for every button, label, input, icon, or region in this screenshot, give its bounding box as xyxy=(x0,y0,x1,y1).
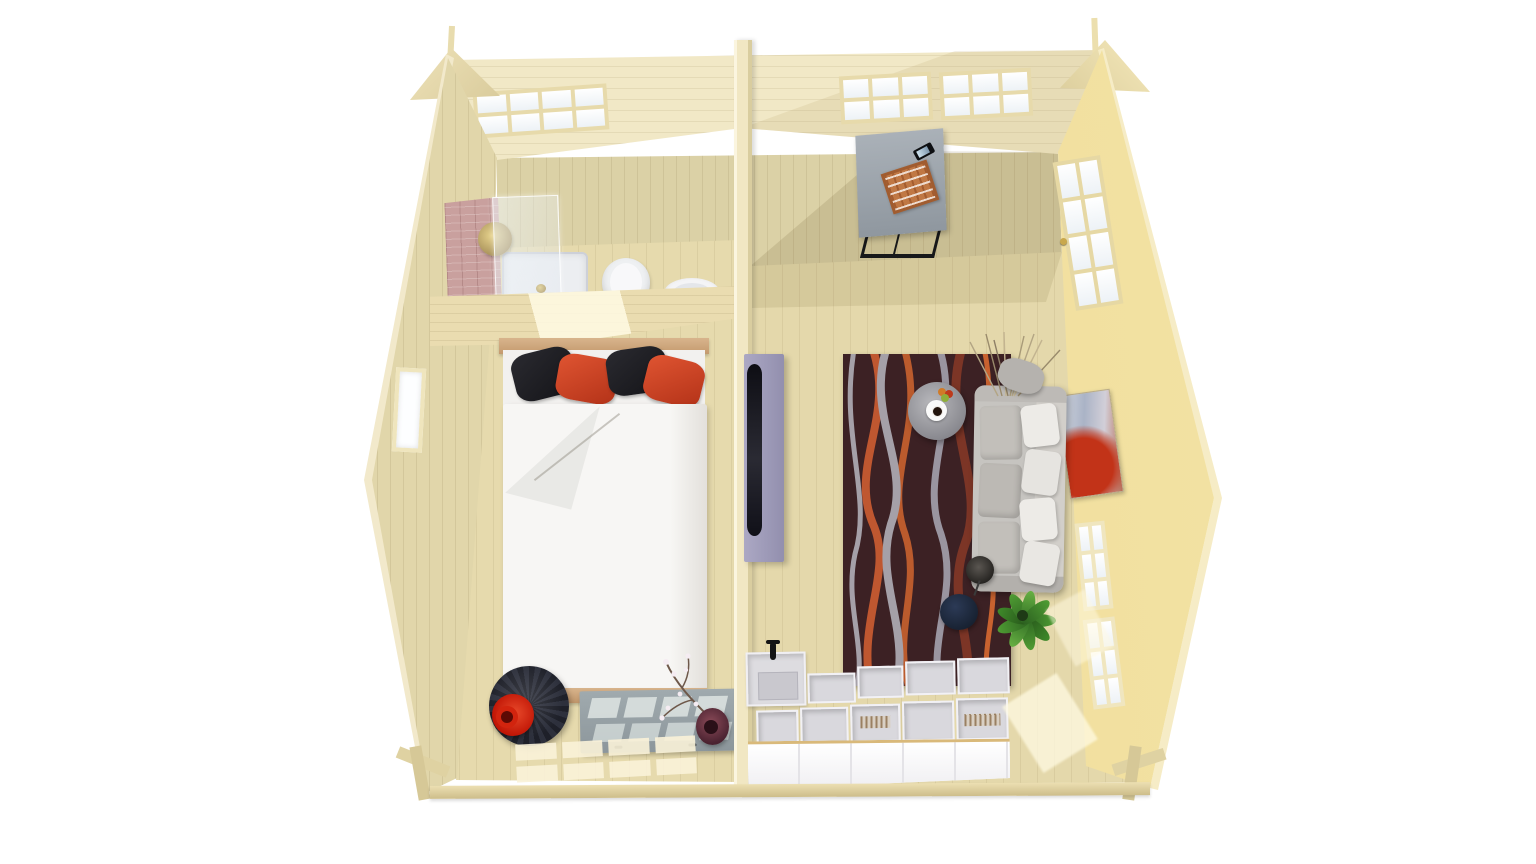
coffee-cup xyxy=(932,406,943,417)
cabin-render xyxy=(0,0,1536,864)
sofa-back-pillow xyxy=(1020,448,1062,497)
sun-patch xyxy=(515,743,556,761)
door-pane xyxy=(1057,163,1080,198)
kitchen-box xyxy=(956,697,1009,740)
window-pane xyxy=(1108,678,1121,704)
vase-opening xyxy=(704,720,718,734)
sun-patch xyxy=(609,760,650,778)
pouf xyxy=(940,594,978,630)
window-pane xyxy=(1079,526,1090,551)
door-pane xyxy=(1096,268,1119,303)
window-pane xyxy=(944,97,970,116)
sofa-seat-cushion xyxy=(978,463,1023,519)
kitchen-carcasses xyxy=(751,657,1011,750)
window-pane xyxy=(903,98,929,117)
door-handle xyxy=(1060,238,1067,245)
window-pane xyxy=(1098,581,1109,606)
window-pane xyxy=(576,109,606,128)
kitchen-box xyxy=(756,710,799,745)
floor-slab-edge xyxy=(430,782,1150,799)
door-pane xyxy=(1079,160,1102,195)
potted-plant xyxy=(986,584,1058,656)
door-pane xyxy=(1063,199,1086,234)
kitchen-box xyxy=(905,660,956,695)
sofa-seat-cushion xyxy=(980,405,1023,460)
kitchen-box xyxy=(902,700,955,741)
sun-patch xyxy=(562,740,603,758)
door-pane xyxy=(1090,232,1113,267)
window-pane xyxy=(844,101,870,120)
sun-patch xyxy=(563,762,604,780)
window-pane xyxy=(943,75,969,94)
sofa-back-pillow xyxy=(1019,497,1059,542)
window-pane xyxy=(1094,679,1107,705)
kitchen-faucet-spout xyxy=(766,640,780,644)
blossoms xyxy=(659,653,698,720)
window-pane xyxy=(1002,72,1028,91)
kitchen-box xyxy=(850,704,901,743)
window-pane xyxy=(511,113,541,132)
red-pot-opening xyxy=(496,706,518,728)
sun-stripe xyxy=(587,698,620,719)
window-pane xyxy=(477,94,507,113)
kitchen-box xyxy=(807,673,856,704)
kitchen-box xyxy=(957,657,1010,694)
kitchen-box xyxy=(857,666,904,699)
window-pane xyxy=(843,79,869,98)
window-pane xyxy=(543,111,573,130)
back-window-right-a xyxy=(839,72,933,125)
plant-center xyxy=(1017,610,1028,621)
sofa-back-pillow xyxy=(1018,540,1061,588)
fruit xyxy=(941,394,949,402)
window-pane xyxy=(972,73,998,92)
window-pane xyxy=(872,77,898,96)
sofa-back-pillow xyxy=(1020,402,1061,448)
door-pane xyxy=(1074,271,1097,306)
window-pane xyxy=(1082,554,1093,579)
sun-patch xyxy=(654,735,695,753)
sun-patch xyxy=(516,765,557,783)
fruit-bowl xyxy=(938,388,956,402)
sun-patch xyxy=(608,738,649,756)
window-pane xyxy=(1003,94,1029,113)
window-pane xyxy=(1092,525,1103,550)
window-pane xyxy=(509,92,539,111)
left-wall-window xyxy=(392,367,426,452)
window-pane xyxy=(973,95,999,114)
tv-screen xyxy=(747,364,762,536)
door-pane xyxy=(1085,196,1108,231)
shower-glass xyxy=(492,195,562,305)
window-pane xyxy=(902,76,928,95)
window-pane xyxy=(1095,553,1106,578)
window-pane xyxy=(574,88,604,107)
window-pane xyxy=(873,99,899,118)
kitchen-faucet xyxy=(770,642,776,660)
door-pane xyxy=(1069,235,1092,270)
sun-patch xyxy=(656,757,697,775)
cutlery-tray xyxy=(860,716,890,729)
window-pane xyxy=(542,90,572,109)
cutlery-tray xyxy=(964,714,1000,727)
window-pane xyxy=(1104,649,1117,675)
back-window-right-b xyxy=(939,68,1033,121)
kitchen-box xyxy=(800,707,849,744)
